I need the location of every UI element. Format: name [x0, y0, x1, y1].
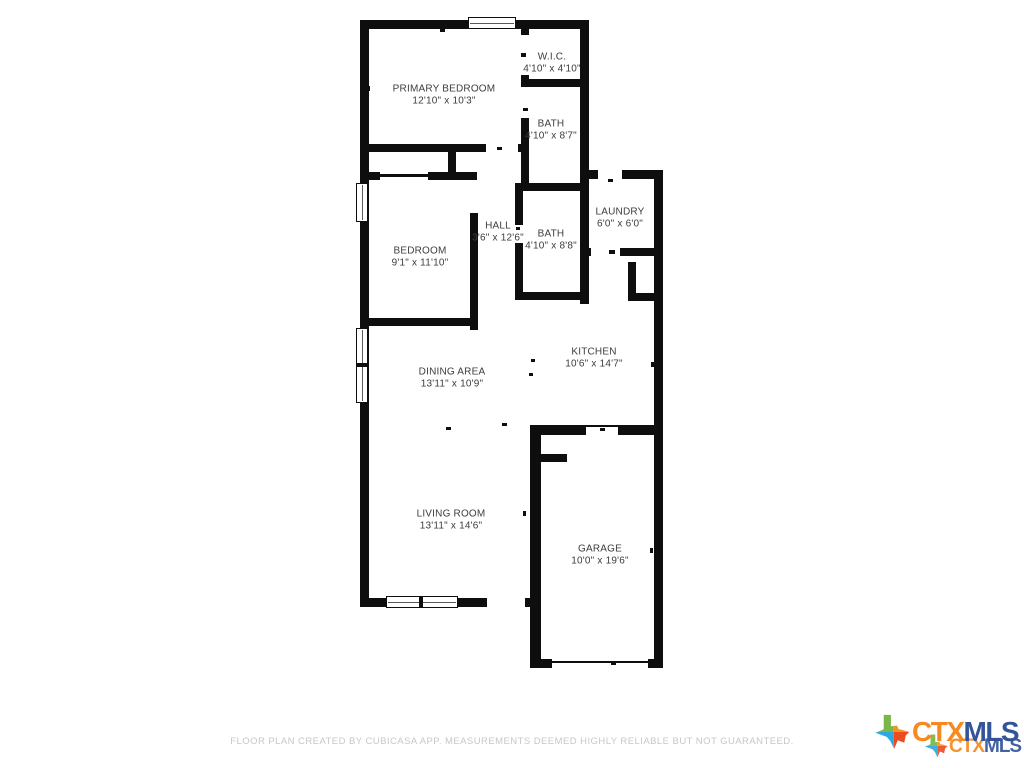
room-dims: 13'11" x 10'9": [419, 378, 486, 390]
window-icon: [468, 17, 516, 29]
wall-segment: [530, 425, 586, 435]
floor-plan: PRIMARY BEDROOM 12'10" x 10'3" W.I.C. 4'…: [0, 0, 1024, 768]
door-tick: [366, 511, 369, 516]
wall-segment: [362, 172, 380, 180]
room-label-primary-bedroom: PRIMARY BEDROOM 12'10" x 10'3": [393, 84, 496, 107]
wall-segment: [428, 172, 477, 180]
room-label-bedroom: BEDROOM 9'1" x 11'10": [392, 246, 449, 269]
door-tick: [650, 548, 653, 553]
room-label-bath-1: BATH 4'10" x 8'7": [525, 119, 577, 142]
door-line: [380, 174, 428, 177]
door-line: [586, 425, 618, 427]
door-tick: [600, 428, 605, 431]
window-icon: [356, 183, 368, 222]
door-tick: [446, 427, 451, 430]
room-dims: 13'11" x 14'6": [417, 520, 486, 532]
door-tick: [651, 362, 654, 367]
texas-icon: [874, 714, 910, 750]
door-line: [552, 661, 648, 663]
door-tick: [611, 662, 616, 665]
wall-segment: [648, 659, 663, 668]
room-dims: 10'0" x 19'6": [571, 555, 628, 567]
room-name: W.I.C.: [523, 52, 580, 64]
room-dims: 4'10" x 8'7": [525, 130, 577, 142]
window-pane-line: [362, 185, 363, 220]
room-label-hall: HALL 3'6" x 12'6": [472, 221, 524, 244]
room-name: LAUNDRY: [595, 207, 644, 219]
room-name: BEDROOM: [392, 246, 449, 258]
wall-segment: [537, 454, 567, 462]
logo-text-mls: MLS: [964, 716, 1019, 747]
room-name: DINING AREA: [419, 367, 486, 379]
room-label-bath-2: BATH 4'10" x 8'8": [525, 229, 577, 252]
wall-segment: [628, 293, 655, 301]
door-tick: [608, 179, 613, 182]
wall-segment: [580, 248, 591, 256]
room-name: KITCHEN: [565, 347, 622, 359]
footer-disclaimer: FLOOR PLAN CREATED BY CUBICASA APP. MEAS…: [0, 736, 1024, 747]
window-pane-line: [470, 23, 514, 24]
wall-segment: [515, 183, 588, 191]
logo-text-ctx: CTX: [912, 716, 964, 747]
room-label-garage: GARAGE 10'0" x 19'6": [571, 544, 628, 567]
wall-segment: [530, 659, 552, 668]
wall-segment: [521, 20, 529, 35]
room-dims: 9'1" x 11'10": [392, 257, 449, 269]
room-dims: 4'10" x 8'8": [525, 240, 577, 252]
room-label-kitchen: KITCHEN 10'6" x 14'7": [565, 347, 622, 370]
room-name: GARAGE: [571, 544, 628, 556]
room-dims: 10'6" x 14'7": [565, 358, 622, 370]
room-dims: 3'6" x 12'6": [472, 232, 524, 244]
room-dims: 12'10" x 10'3": [393, 95, 496, 107]
room-name: LIVING ROOM: [417, 509, 486, 521]
wall-segment: [518, 144, 529, 152]
window-mullion: [356, 363, 368, 367]
room-label-dining-area: DINING AREA 13'11" x 10'9": [419, 367, 486, 390]
room-name: BATH: [525, 119, 577, 131]
room-name: PRIMARY BEDROOM: [393, 84, 496, 96]
door-tick: [367, 86, 370, 91]
wall-segment: [360, 144, 486, 152]
wall-segment: [654, 170, 663, 668]
room-dims: 6'0" x 6'0": [595, 218, 644, 230]
ctxmls-logo: CTXMLS: [874, 714, 1018, 750]
wall-segment: [360, 318, 478, 326]
wall-segment: [521, 79, 588, 87]
door-tick: [441, 146, 447, 149]
floor-plan-page: { "floor_plan": { "rooms": [ {"name": "P…: [0, 0, 1024, 768]
wall-segment: [620, 248, 663, 256]
door-tick: [440, 29, 445, 32]
window-mullion: [419, 596, 423, 608]
wall-segment: [583, 170, 598, 179]
wall-segment: [515, 292, 588, 300]
door-tick: [502, 423, 507, 426]
door-tick: [523, 511, 526, 516]
wall-segment: [360, 20, 369, 607]
room-label-living-room: LIVING ROOM 13'11" x 14'6": [417, 509, 486, 532]
door-tick: [366, 247, 369, 252]
wall-segment: [618, 425, 663, 435]
door-tick: [531, 359, 535, 362]
door-tick: [529, 373, 533, 376]
room-dims: 4'10" x 4'10": [523, 63, 580, 75]
room-label-wic: W.I.C. 4'10" x 4'10": [523, 52, 580, 75]
door-tick: [472, 216, 476, 220]
room-label-laundry: LAUNDRY 6'0" x 6'0": [595, 207, 644, 230]
door-tick: [609, 250, 615, 254]
room-name: HALL: [472, 221, 524, 233]
door-tick: [497, 147, 502, 150]
door-tick: [536, 548, 539, 553]
wall-segment: [580, 20, 589, 304]
room-name: BATH: [525, 229, 577, 241]
door-tick: [523, 108, 528, 111]
